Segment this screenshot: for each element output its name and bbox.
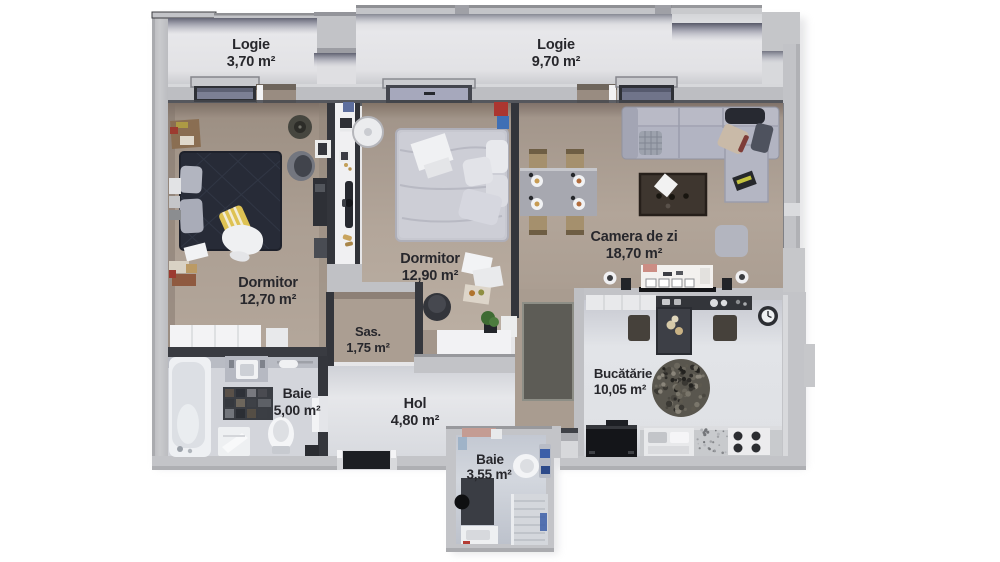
svg-text:Bucătărie: Bucătărie xyxy=(594,366,652,381)
svg-text:10,05 m²: 10,05 m² xyxy=(594,382,647,397)
svg-text:9,70 m²: 9,70 m² xyxy=(532,54,581,70)
svg-text:Logie: Logie xyxy=(537,37,575,53)
svg-text:Logie: Logie xyxy=(232,37,270,53)
svg-text:Sas.: Sas. xyxy=(355,324,381,339)
svg-text:Hol: Hol xyxy=(404,396,427,412)
svg-text:Baie: Baie xyxy=(476,452,504,467)
svg-text:12,70 m²: 12,70 m² xyxy=(240,292,297,308)
svg-text:Camera de zi: Camera de zi xyxy=(590,229,677,245)
svg-text:1,75 m²: 1,75 m² xyxy=(346,340,390,355)
svg-text:3,55 m²: 3,55 m² xyxy=(466,467,512,482)
svg-text:12,90 m²: 12,90 m² xyxy=(402,268,459,284)
svg-text:Baie: Baie xyxy=(283,385,312,401)
svg-text:18,70 m²: 18,70 m² xyxy=(606,246,663,262)
svg-text:5,00 m²: 5,00 m² xyxy=(274,402,321,418)
svg-text:Dormitor: Dormitor xyxy=(238,275,298,291)
svg-text:Dormitor: Dormitor xyxy=(400,251,460,267)
svg-text:4,80 m²: 4,80 m² xyxy=(391,413,440,429)
svg-text:3,70 m²: 3,70 m² xyxy=(227,54,276,70)
